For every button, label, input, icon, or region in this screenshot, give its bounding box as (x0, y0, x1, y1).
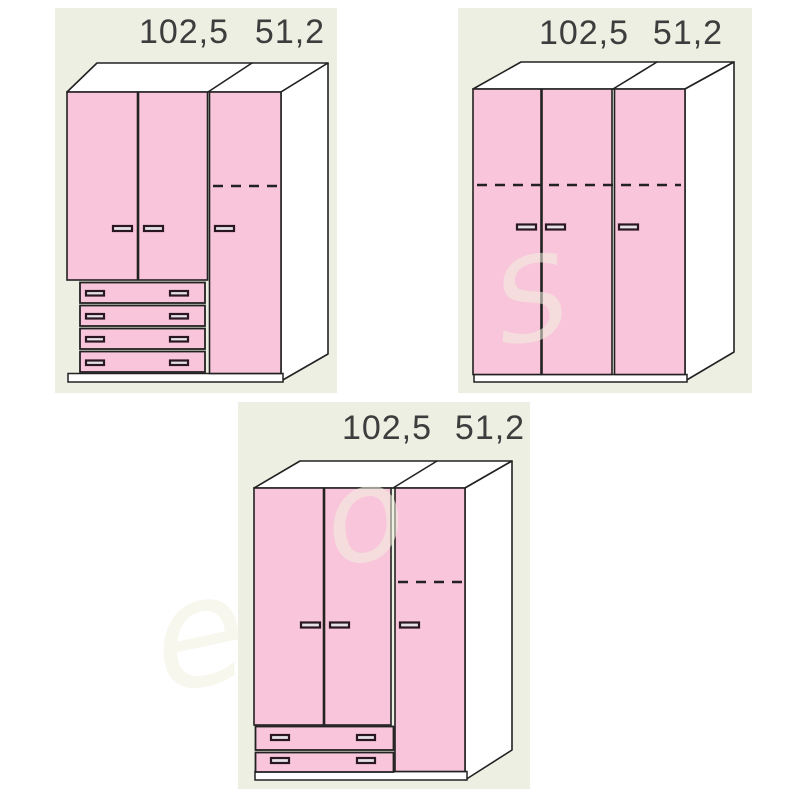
depth-dimension-label: 51,2 (653, 14, 723, 52)
width-dimension-label: 102,5 (139, 13, 229, 51)
wardrobe-side-face (465, 461, 512, 780)
door-handle-icon (400, 623, 419, 628)
door-left (254, 488, 324, 725)
depth-dimension-label: 51,2 (455, 409, 525, 447)
door-handle-icon (517, 225, 536, 230)
drawer-handle-icon (170, 337, 188, 342)
drawer-handle-icon (357, 758, 375, 763)
drawer-handle-icon (170, 291, 188, 296)
drawer-handle-icon (86, 291, 104, 296)
panel-top-left: 102,5 51,2 (55, 8, 337, 393)
wardrobe-3door-4drawer (67, 63, 328, 382)
drawer-handle-icon (271, 735, 289, 740)
depth-dimension-label: 51,2 (255, 13, 325, 51)
door-left (67, 92, 138, 280)
width-dimension-label: 102,5 (539, 14, 629, 52)
catalog-canvas: 102,5 51,2 (0, 0, 800, 800)
door-middle (139, 92, 208, 280)
drawer-handle-icon (86, 314, 104, 319)
drawer-handle-icon (170, 314, 188, 319)
wardrobe-side-face (685, 62, 734, 381)
plinth (68, 374, 283, 383)
door-handle-icon (330, 623, 349, 628)
drawer-handle-icon (357, 735, 375, 740)
plinth (474, 375, 687, 383)
drawer-handle-icon (170, 361, 188, 366)
drawer-handle-icon (86, 361, 104, 366)
door-handle-icon (144, 226, 163, 231)
door-handle-icon (301, 623, 320, 628)
drawer-handle-icon (271, 758, 289, 763)
wardrobe-side-face (281, 63, 328, 381)
door-right (210, 92, 282, 374)
door-handle-icon (113, 226, 132, 231)
drawer-handle-icon (86, 337, 104, 342)
door-handle-icon (215, 226, 234, 231)
door-handle-icon (619, 225, 638, 230)
door-right (615, 89, 686, 375)
